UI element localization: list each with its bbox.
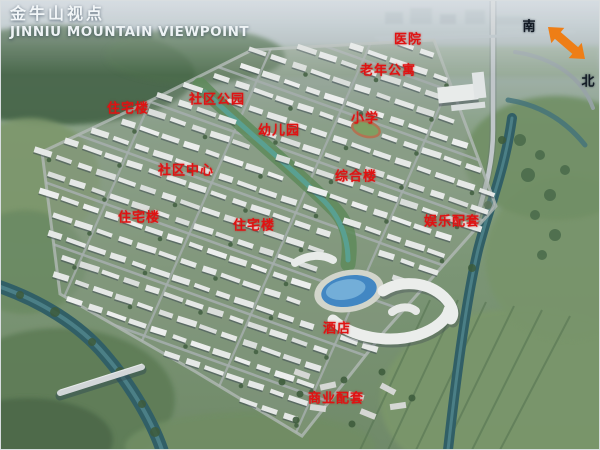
- page-title-en: JINNIU MOUNTAIN VIEWPOINT: [10, 24, 249, 41]
- jinniu-mountain-viewpoint-rendering: 金牛山视点 JINNIU MOUNTAIN VIEWPOINT 医院老年公寓社区…: [0, 0, 600, 450]
- map-label: 医院: [394, 29, 422, 48]
- map-label: 住宅楼: [107, 98, 149, 117]
- map-label: 老年公寓: [360, 60, 416, 79]
- map-label: 娱乐配套: [424, 211, 480, 230]
- map-label: 社区中心: [158, 160, 214, 179]
- page-title-zh: 金牛山视点: [10, 4, 249, 24]
- map-labels: 医院老年公寓社区公园住宅楼小学幼儿园社区中心综合楼住宅楼住宅楼娱乐配套酒店商业配…: [0, 0, 600, 450]
- map-label: 住宅楼: [118, 207, 160, 226]
- map-label: 幼儿园: [258, 120, 300, 139]
- map-label: 商业配套: [308, 388, 364, 407]
- title-block: 金牛山视点 JINNIU MOUNTAIN VIEWPOINT: [10, 4, 249, 41]
- map-label: 酒店: [323, 318, 351, 337]
- map-label: 社区公园: [189, 89, 245, 108]
- map-label: 住宅楼: [233, 215, 275, 234]
- map-label: 综合楼: [335, 166, 377, 185]
- map-label: 小学: [351, 108, 379, 127]
